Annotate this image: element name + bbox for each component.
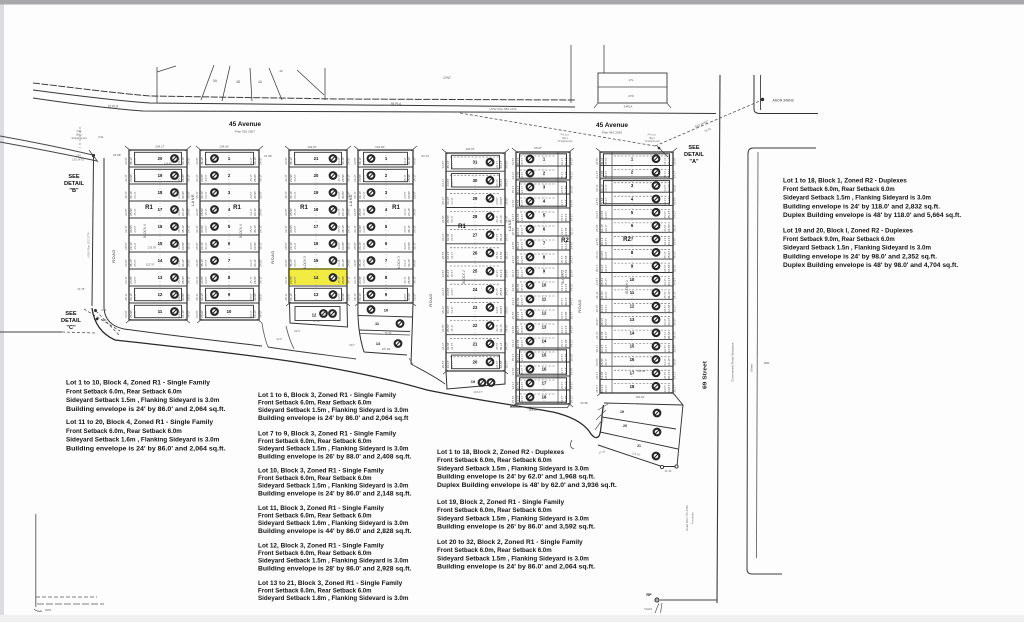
svg-text:24.5T: 24.5T [204,225,208,232]
svg-text:27: 27 [473,232,478,237]
svg-text:24.5T: 24.5T [249,191,253,198]
svg-text:25.5T: 25.5T [673,264,677,272]
svg-text:24.1T: 24.1T [441,179,445,187]
svg-text:21: 21 [314,156,319,161]
svg-text:34.5T: 34.5T [341,293,345,301]
svg-text:35.1T: 35.1T [133,310,137,317]
svg-text:25.5T: 25.5T [560,382,564,389]
svg-text:24.5T: 24.5T [505,270,509,278]
svg-text:45 Avenue: 45 Avenue [596,122,628,129]
svg-text:25.5T: 25.5T [253,276,257,284]
svg-text:35.1T: 35.1T [564,213,568,221]
svg-text:Building envelope is 44' by 86: Building envelope is 44' by 86.0' and 2,… [258,529,412,535]
svg-text:Sideyard Setback 1.6m , Flanki: Sideyard Setback 1.6m , Flanking Sideyar… [66,438,219,444]
svg-text:34.5T: 34.5T [667,264,671,272]
svg-text:11: 11 [542,297,547,302]
svg-text:24.5T: 24.5T [570,157,574,165]
svg-text:25.5T: 25.5T [259,191,263,199]
svg-text:25.5T: 25.5T [181,276,185,284]
svg-text:24.1T: 24.1T [595,251,599,259]
svg-text:25.5T: 25.5T [177,225,181,232]
svg-text:21: 21 [473,341,478,346]
svg-text:34.5T: 34.5T [663,224,667,231]
svg-text:20: 20 [158,156,163,161]
svg-text:35.1T: 35.1T [177,174,181,181]
svg-text:24.1T: 24.1T [560,326,564,333]
svg-text:24.1T: 24.1T [124,276,128,284]
svg-text:35.1T: 35.1T [667,211,671,219]
svg-text:35.1T: 35.1T [124,293,128,301]
svg-text:35.1T: 35.1T [560,256,564,263]
svg-text:24.5T: 24.5T [604,211,608,218]
svg-text:15: 15 [630,344,635,349]
svg-text:34.1T: 34.1T [450,361,454,368]
svg-text:34.1T: 34.1T [249,208,253,215]
svg-text:Front Setback 6.0m, Rear Setba: Front Setback 6.0m, Rear Setback 6.0m [783,187,895,193]
svg-text:34.5T: 34.5T [663,305,667,312]
svg-text:25.5T: 25.5T [407,174,411,182]
svg-text:22: 22 [473,323,478,328]
svg-text:25.5T: 25.5T [362,157,366,164]
svg-text:18: 18 [630,384,635,389]
svg-text:35.1T: 35.1T [604,358,608,365]
svg-text:BLOCK 3: BLOCK 3 [397,256,401,270]
svg-text:25.5T: 25.5T [249,225,253,232]
svg-text:35.1T: 35.1T [259,242,263,250]
svg-text:34.1T: 34.1T [564,157,568,165]
svg-text:24.1T: 24.1T [337,259,341,266]
svg-text:34.5T: 34.5T [284,259,288,267]
svg-text:24.1T: 24.1T [337,157,341,164]
svg-text:24PLA: 24PLA [624,105,633,109]
svg-text:35.1T: 35.1T [362,208,366,215]
svg-text:Lot 20 to 32, Block 2, Zoned R: Lot 20 to 32, Block 2, Zoned R1 - Single… [437,540,583,546]
svg-text:35.1T: 35.1T [595,345,599,353]
svg-text:45 Avenue: 45 Avenue [229,121,261,128]
svg-text:Lot 11 to 20, Block 4, Zoned R: Lot 11 to 20, Block 4, Zoned R1 - Single… [66,420,214,426]
svg-text:Front Setback 6.0m, Rear Setba: Front Setback 6.0m, Rear Setback 6.0m [258,439,372,445]
svg-text:35.1T: 35.1T [204,310,208,317]
svg-text:35.1T: 35.1T [413,242,417,250]
svg-text:34.1T: 34.1T [187,174,191,182]
svg-text:34.1T: 34.1T [450,252,454,259]
svg-text:34.5T: 34.5T [663,385,667,392]
svg-text:35.1T: 35.1T [595,184,599,192]
svg-text:24.1T: 24.1T [347,225,351,233]
svg-text:34.5T: 34.5T [249,242,253,249]
svg-text:Building envelope is 24' by 62: Building envelope is 24' by 62.0' and 1,… [437,475,595,481]
svg-text:107.2E: 107.2E [382,347,391,351]
svg-text:24.1T: 24.1T [663,238,667,245]
svg-text:24.1T: 24.1T [570,297,574,305]
svg-text:24.1T: 24.1T [499,324,503,332]
svg-text:21: 21 [637,444,641,448]
svg-text:24.5T: 24.5T [505,161,509,169]
svg-text:34.5T: 34.5T [604,251,608,258]
svg-text:35.1T: 35.1T [181,225,185,233]
svg-text:Lot 11, Block 3, Zoned R1 - Si: Lot 11, Block 3, Zoned R1 - Single Famil… [258,506,385,512]
svg-text:34.1T: 34.1T [341,259,345,267]
svg-text:24.1T: 24.1T [403,157,407,164]
svg-text:25.5T: 25.5T [495,342,499,349]
svg-text:BLOCK 1: BLOCK 1 [625,280,629,294]
svg-text:Sideyard Setback 1.5m , Flanki: Sideyard Setback 1.5m , Flanking Sideyar… [258,484,408,490]
svg-text:Duplex Building envelope is 48: Duplex Building envelope is 48' by 118.0… [783,213,962,219]
svg-text:25.5T: 25.5T [663,211,667,218]
svg-text:24.1T: 24.1T [341,208,345,216]
svg-text:25.5T: 25.5T [667,331,671,339]
svg-text:25.5T: 25.5T [337,225,341,232]
svg-text:Government Road Allowance: Government Road Allowance [731,342,735,381]
svg-text:24.1T: 24.1T [187,225,191,233]
svg-text:15: 15 [314,258,319,263]
svg-text:USW Plan 872 2770: USW Plan 872 2770 [87,232,91,258]
svg-text:35.1T: 35.1T [407,225,411,233]
svg-text:13: 13 [630,317,635,322]
svg-text:35.1T: 35.1T [663,331,667,338]
svg-text:ROAD: ROAD [577,299,582,313]
svg-text:R1: R1 [300,205,308,211]
svg-text:25.5T: 25.5T [450,161,454,168]
svg-text:25.5T: 25.5T [353,242,357,250]
svg-text:30: 30 [473,178,478,183]
svg-text:25.5T: 25.5T [441,360,445,368]
svg-text:10: 10 [630,277,635,282]
svg-text:29: 29 [473,196,478,201]
svg-text:34.1T: 34.1T [362,242,366,249]
svg-text:24.5T: 24.5T [570,241,574,249]
svg-text:25.5T: 25.5T [403,225,407,232]
svg-text:34.1T: 34.1T [604,385,608,392]
svg-text:34.5T: 34.5T [353,157,357,165]
svg-text:101.47': 101.47' [473,390,483,394]
svg-text:24.1T: 24.1T [499,215,503,223]
svg-text:34.1T: 34.1T [505,288,509,296]
svg-text:35.1T: 35.1T [520,284,524,291]
svg-text:P41: P41 [77,129,82,133]
svg-text:34.5T: 34.5T [133,276,137,283]
svg-text:35.1T: 35.1T [347,242,351,250]
svg-text:34.5T: 34.5T [124,157,128,165]
svg-text:55 PLA: 55 PLA [391,102,402,106]
svg-text:34.5T: 34.5T [181,293,185,301]
svg-text:24.5T: 24.5T [195,310,199,318]
svg-text:35.1T: 35.1T [353,191,357,199]
svg-text:34.5T: 34.5T [177,242,181,249]
svg-text:35.1T: 35.1T [595,264,599,272]
svg-text:24.1T: 24.1T [195,174,199,182]
svg-text:25.5T: 25.5T [441,251,445,259]
svg-text:R2: R2 [623,237,631,243]
svg-text:24.5T: 24.5T [595,197,599,205]
svg-text:Duplex Building envelope is 48: Duplex Building envelope is 48' by 62.0'… [437,483,617,489]
svg-text:20: 20 [623,424,627,428]
svg-text:24.5T: 24.5T [673,237,677,245]
svg-text:LANE: LANE [348,194,353,206]
svg-text:25.5T: 25.5T [595,385,599,393]
svg-text:25.5T: 25.5T [520,242,524,249]
svg-text:24.5T: 24.5T [124,310,128,318]
svg-text:Front Setback 6.0m, Rear Setba: Front Setback 6.0m, Rear Setback 6.0m [66,429,182,435]
svg-text:34.5T: 34.5T [673,278,677,286]
svg-text:Sideyard Setback 1.5m , Flanki: Sideyard Setback 1.5m , Flanking Sideyar… [66,398,219,404]
svg-text:Lot 1 to 18, Block 1, Zoned R2: Lot 1 to 18, Block 1, Zoned R2 - Duplexe… [783,179,907,185]
svg-text:24.1T: 24.1T [249,259,253,266]
svg-text:24.5T: 24.5T [362,225,366,232]
svg-text:Straightened: Straightened [645,139,660,143]
svg-text:RP: RP [646,593,652,597]
svg-text:24.1T: 24.1T [604,345,608,352]
svg-text:35.1T: 35.1T [667,291,671,299]
svg-text:14: 14 [630,330,635,335]
svg-text:24.5T: 24.5T [499,251,503,259]
svg-text:24.5T: 24.5T [441,324,445,332]
svg-text:23: 23 [473,305,478,310]
svg-text:18: 18 [314,207,319,212]
svg-text:24.5T: 24.5T [673,318,677,326]
svg-text:35.1T: 35.1T [293,208,297,215]
svg-text:25.5T: 25.5T [204,157,208,164]
svg-text:35.1T: 35.1T [499,342,503,350]
svg-text:34.1T: 34.1T [337,208,341,215]
svg-text:34.5T: 34.5T [181,191,185,199]
svg-text:24.1T: 24.1T [595,331,599,339]
svg-text:R1: R1 [233,205,241,211]
svg-text:25.5T: 25.5T [673,345,677,353]
svg-text:34.5T: 34.5T [204,276,208,283]
svg-text:24.5T: 24.5T [667,224,671,232]
svg-text:24.1T: 24.1T [505,342,509,350]
svg-text:25.5T: 25.5T [505,306,509,314]
svg-text:Building envelope is 24' by 86: Building envelope is 24' by 86.0' and 2,… [437,565,595,571]
svg-text:SEE: SEE [65,311,76,317]
svg-text:34.5T: 34.5T [347,208,351,216]
svg-text:34.5T: 34.5T [187,310,191,318]
svg-text:34.1T: 34.1T [673,331,677,339]
svg-text:BLOCK 2: BLOCK 2 [462,270,466,284]
svg-text:Sideyard Setback 1.8m , Flanki: Sideyard Setback 1.8m , Flanking Sidevar… [258,596,408,602]
svg-text:24.5T: 24.5T [249,293,253,300]
svg-text:35.1T: 35.1T [204,208,208,215]
svg-text:25.5T: 25.5T [341,276,345,284]
svg-text:Front Setback 6.0m, Rear Setba: Front Setback 6.0m, Rear Setback 6.0m [258,476,372,482]
svg-text:Straightened: Straightened [71,136,87,140]
svg-text:25.5T: 25.5T [570,269,574,277]
svg-text:12: 12 [630,304,635,309]
svg-text:ROAD: ROAD [270,250,275,264]
svg-text:130 14'33: 130 14'33 [72,157,84,161]
svg-text:24.1T: 24.1T [673,371,677,379]
svg-text:Sideyard Setback 1.6m , Flanki: Sideyard Setback 1.6m , Flanking Sideyar… [258,521,408,527]
svg-text:25.5T: 25.5T [499,179,503,187]
svg-text:24.1T: 24.1T [413,225,417,233]
svg-text:35.1T: 35.1T [560,340,564,347]
svg-text:Front Setback 6.0m, Rear Setba: Front Setback 6.0m, Rear Setback 6.0m [437,508,552,514]
svg-text:34.1T: 34.1T [347,174,351,182]
svg-text:34.1T: 34.1T [187,276,191,284]
svg-text:35.1T: 35.1T [511,269,515,277]
svg-text:35.1T: 35.1T [187,242,191,250]
svg-text:24.5T: 24.5T [499,360,503,368]
svg-text:Front Setback 6.0m, Rear Setba: Front Setback 6.0m, Rear Setback 6.0m [258,589,372,595]
svg-text:20: 20 [473,360,478,365]
svg-text:14: 14 [542,339,547,344]
svg-text:34.1T: 34.1T [604,305,608,312]
svg-text:13: 13 [542,325,547,330]
svg-text:34.5T: 34.5T [362,174,366,181]
svg-text:24.5T: 24.5T [663,345,667,352]
svg-text:24.5T: 24.5T [253,242,257,250]
svg-text:24.5T: 24.5T [560,186,564,193]
svg-text:18: 18 [542,395,547,400]
svg-text:24.1T: 24.1T [181,208,185,216]
svg-text:34.1T: 34.1T [403,208,407,215]
svg-text:34.1T: 34.1T [595,291,599,299]
svg-text:Lot 12, Block 3, Zoned R1 - Si: Lot 12, Block 3, Zoned R1 - Single Famil… [258,544,385,550]
svg-text:24.5T: 24.5T [673,157,677,165]
svg-text:35.1T: 35.1T [604,278,608,285]
svg-text:16: 16 [314,241,319,246]
svg-text:24.5T: 24.5T [595,278,599,286]
svg-text:BLOCK 3: BLOCK 3 [303,256,307,270]
svg-text:24.1T: 24.1T [667,358,671,366]
svg-text:35.1T: 35.1T [511,185,515,193]
svg-text:24.1T: 24.1T [673,291,677,299]
svg-text:28: 28 [473,214,478,219]
svg-text:25.5T: 25.5T [673,184,677,192]
svg-text:24.5T: 24.5T [347,259,351,267]
svg-text:35.1T: 35.1T [195,293,199,301]
svg-text:34.1T: 34.1T [195,225,199,233]
svg-text:Front Setback 6.0m, Rear Setba: Front Setback 6.0m, Rear Setback 6.0m [66,389,182,395]
svg-text:34.1T: 34.1T [259,174,263,182]
svg-text:35.1T: 35.1T [284,191,288,199]
svg-text:24.5T: 24.5T [495,306,499,313]
svg-text:25.5T: 25.5T [560,298,564,305]
svg-text:25.5T: 25.5T [499,288,503,296]
svg-text:24.5T: 24.5T [403,191,407,198]
svg-text:34.5T: 34.5T [511,157,515,165]
svg-text:19: 19 [314,190,319,195]
svg-text:4F: 4F [279,69,283,73]
svg-text:34.1T: 34.1T [663,278,667,285]
svg-text:34.5T: 34.5T [520,256,524,263]
svg-text:10 PLA: 10 PLA [108,105,119,109]
svg-text:34.5T: 34.5T [362,276,366,283]
svg-text:18: 18 [158,190,163,195]
svg-text:24.1T: 24.1T [284,174,288,182]
svg-text:25.5T: 25.5T [259,293,263,301]
svg-text:156.46': 156.46' [636,369,646,373]
svg-text:LANE: LANE [507,219,512,231]
svg-text:24.1T: 24.1T [259,225,263,233]
svg-text:34.5T: 34.5T [413,208,417,216]
svg-text:BLOCK 4: BLOCK 4 [143,224,147,238]
svg-text:Bent: Bent [76,133,82,137]
svg-text:34.1T: 34.1T [560,284,564,291]
svg-text:34.5T: 34.5T [560,228,564,235]
svg-text:34.1T: 34.1T [570,255,574,263]
svg-text:24.1T: 24.1T [133,293,137,300]
svg-text:24.1T: 24.1T [124,174,128,182]
svg-text:154.46': 154.46' [528,408,538,412]
svg-text:34.5T: 34.5T [570,283,574,291]
svg-text:24.5T: 24.5T [495,197,499,204]
svg-text:24.5T: 24.5T [124,208,128,216]
svg-text:34.5T: 34.5T [253,293,257,301]
svg-text:ROAD: ROAD [428,293,433,307]
svg-text:24.5T: 24.5T [604,291,608,298]
svg-text:34.5T: 34.5T [293,174,297,181]
svg-text:24.1T: 24.1T [673,211,677,219]
svg-text:13: 13 [314,292,319,297]
svg-text:35.1T: 35.1T [353,293,357,301]
svg-text:24.5T: 24.5T [667,385,671,393]
svg-text:24.1T: 24.1T [177,157,181,164]
svg-text:34.5T: 34.5T [337,242,341,249]
svg-text:34.1T: 34.1T [413,276,417,284]
svg-text:34.5T: 34.5T [353,259,357,267]
svg-text:34.1T: 34.1T [407,157,411,165]
svg-text:34.5T: 34.5T [441,270,445,278]
svg-text:DETAIL: DETAIL [64,181,85,187]
svg-text:34.5T: 34.5T [259,208,263,216]
svg-text:25.5T: 25.5T [341,174,345,182]
svg-text:24.5T: 24.5T [259,259,263,267]
svg-text:Street: Street [750,364,754,372]
svg-text:24.5T: 24.5T [560,354,564,361]
svg-text:12: 12 [312,313,317,318]
svg-text:24.1T: 24.1T [505,233,509,241]
svg-text:25.5T: 25.5T [595,224,599,232]
svg-text:14: 14 [314,275,319,280]
svg-text:25.5T: 25.5T [124,242,128,250]
svg-text:Straightened: Straightened [558,139,573,143]
svg-text:35.1T: 35.1T [249,276,253,283]
svg-text:25.5T: 25.5T [133,157,137,164]
svg-text:Sideyard Setback 1.5n , Flanki: Sideyard Setback 1.5n , Flanking Sideyar… [783,246,931,252]
svg-text:11: 11 [375,322,379,326]
svg-text:35.0B: 35.0B [580,401,587,405]
svg-text:19.0B': 19.0B' [264,154,273,158]
svg-text:34.5T: 34.5T [407,191,411,199]
svg-text:25.5T: 25.5T [595,304,599,312]
svg-text:20: 20 [314,173,319,178]
svg-text:25.5T: 25.5T [284,242,288,250]
svg-text:24.5T: 24.5T [520,382,524,389]
svg-text:34.5T: 34.5T [195,259,199,267]
svg-text:24.1T: 24.1T [353,276,357,284]
svg-text:24.1T: 24.1T [204,293,208,300]
svg-text:Sideyard Setback 1.5m , Flanki: Sideyard Setback 1.5m , Flanking Sideyar… [258,408,408,414]
svg-text:10: 10 [227,309,232,314]
svg-text:Lot 1 to 6, Block 3, Zoned R1: Lot 1 to 6, Block 3, Zoned R1 - Single F… [258,393,397,399]
svg-text:25.5T: 25.5T [413,293,417,301]
svg-text:34.1T: 34.1T [520,312,524,319]
svg-text:R1: R1 [145,205,153,211]
svg-text:Lot 7 to 9, Block 3, Zoned R1: Lot 7 to 9, Block 3, Zoned R1 - Single F… [258,432,397,438]
svg-text:35.1T: 35.1T [249,174,253,181]
svg-text:123.78': 123.78' [146,263,155,267]
svg-text:Lot 19 and 20, Block I, Zoned: Lot 19 and 20, Block I, Zoned R2 - Duple… [783,229,914,235]
svg-text:25.5T: 25.5T [604,157,608,164]
svg-text:35.1T: 35.1T [337,174,341,181]
svg-text:35.1T: 35.1T [195,191,199,199]
svg-text:34.1T: 34.1T [667,318,671,326]
svg-text:24.1T: 24.1T [570,381,574,389]
svg-text:25.5T: 25.5T [181,174,185,182]
svg-text:24.5T: 24.5T [195,208,199,216]
